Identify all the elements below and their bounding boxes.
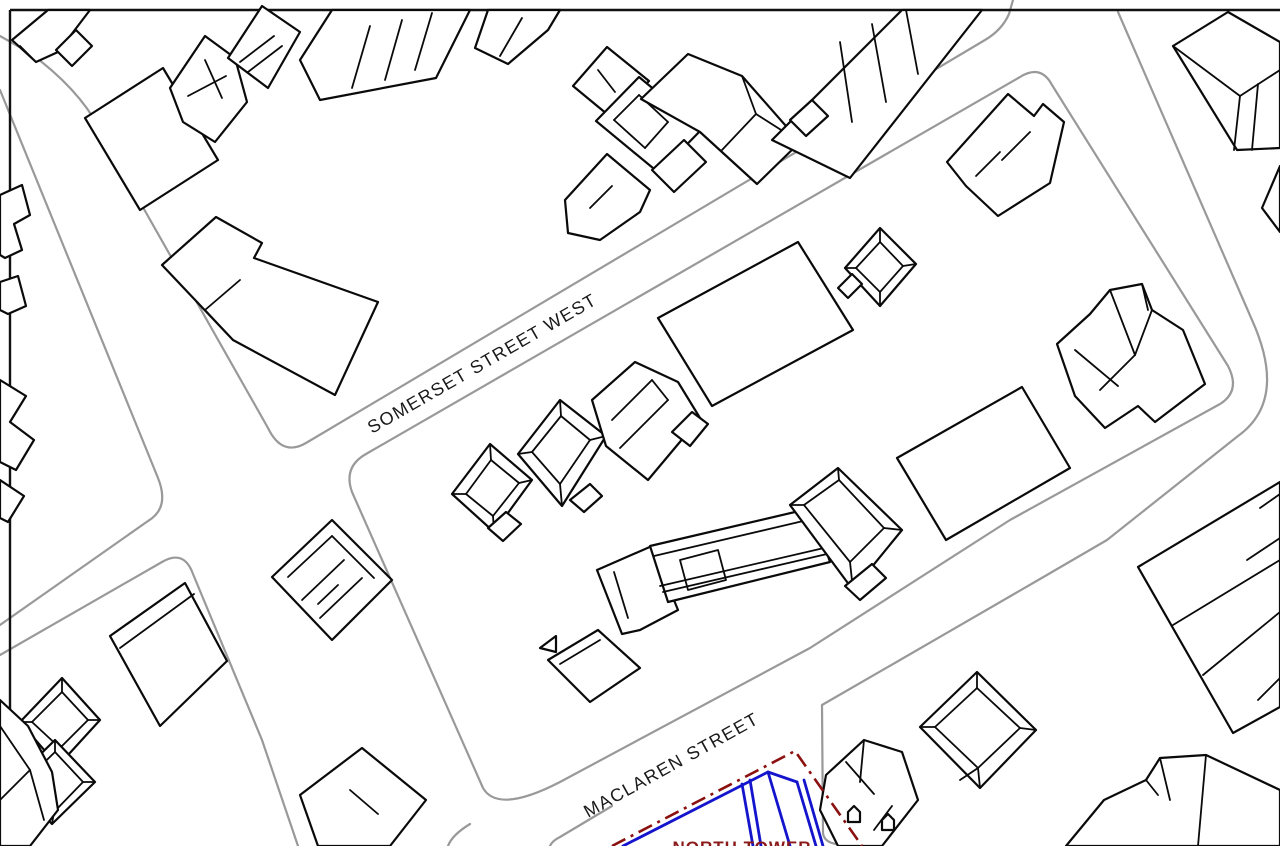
building-large-plain-rect-south xyxy=(897,387,1070,540)
tower-label-north-tower: NORTH TOWER xyxy=(672,838,811,846)
building-topright-edge-step xyxy=(1262,166,1280,232)
building-square-bottom-left xyxy=(110,583,227,726)
building-rowhouse-top xyxy=(772,10,982,178)
building-tiny-triangle xyxy=(540,636,556,652)
building-house-near-tower xyxy=(820,740,918,846)
building-left-edge-step-1 xyxy=(0,185,30,258)
street-block-loop-somerset-south-maclaren-north xyxy=(349,72,1233,800)
site-plan-canvas: SOMERSET STREET WESTMACLAREN STREETNORTH… xyxy=(0,0,1280,846)
building-hip-house-2-detail-5 xyxy=(560,400,561,416)
site-plan-viewport: SOMERSET STREET WESTMACLAREN STREETNORTH… xyxy=(0,0,1280,846)
street-label-maclaren: MACLAREN STREET xyxy=(580,708,762,821)
building-small-slab-top xyxy=(475,10,560,64)
building-rowhouse-block-hip-detail-5 xyxy=(838,468,839,480)
building-hip-house-2-bump xyxy=(570,484,602,512)
building-wide-slab-top xyxy=(300,10,470,100)
building-left-edge-step-3 xyxy=(0,380,34,470)
building-layer xyxy=(0,6,1280,846)
building-north-east-house xyxy=(947,94,1064,216)
building-cluster-top-center-d xyxy=(565,154,650,240)
building-left-edge-step-2 xyxy=(0,276,26,314)
building-big-rect-bottom-right xyxy=(1138,482,1280,733)
building-courtyard-square xyxy=(272,520,392,640)
building-partial-bottom-center xyxy=(300,748,426,846)
street-maclaren-southwest-corner-piece xyxy=(448,824,470,846)
building-large-plain-rect-north xyxy=(658,242,853,406)
building-l-shape-upper-left xyxy=(162,217,378,395)
building-wedge-complex-right xyxy=(1057,284,1205,428)
parcel-blue-line-1 xyxy=(768,772,797,782)
building-left-edge-step-4 xyxy=(0,480,24,522)
building-bottom-right-corner xyxy=(1066,755,1280,846)
building-hip-house-1-detail-5 xyxy=(490,444,491,460)
building-rowhouse-tail xyxy=(548,630,640,702)
